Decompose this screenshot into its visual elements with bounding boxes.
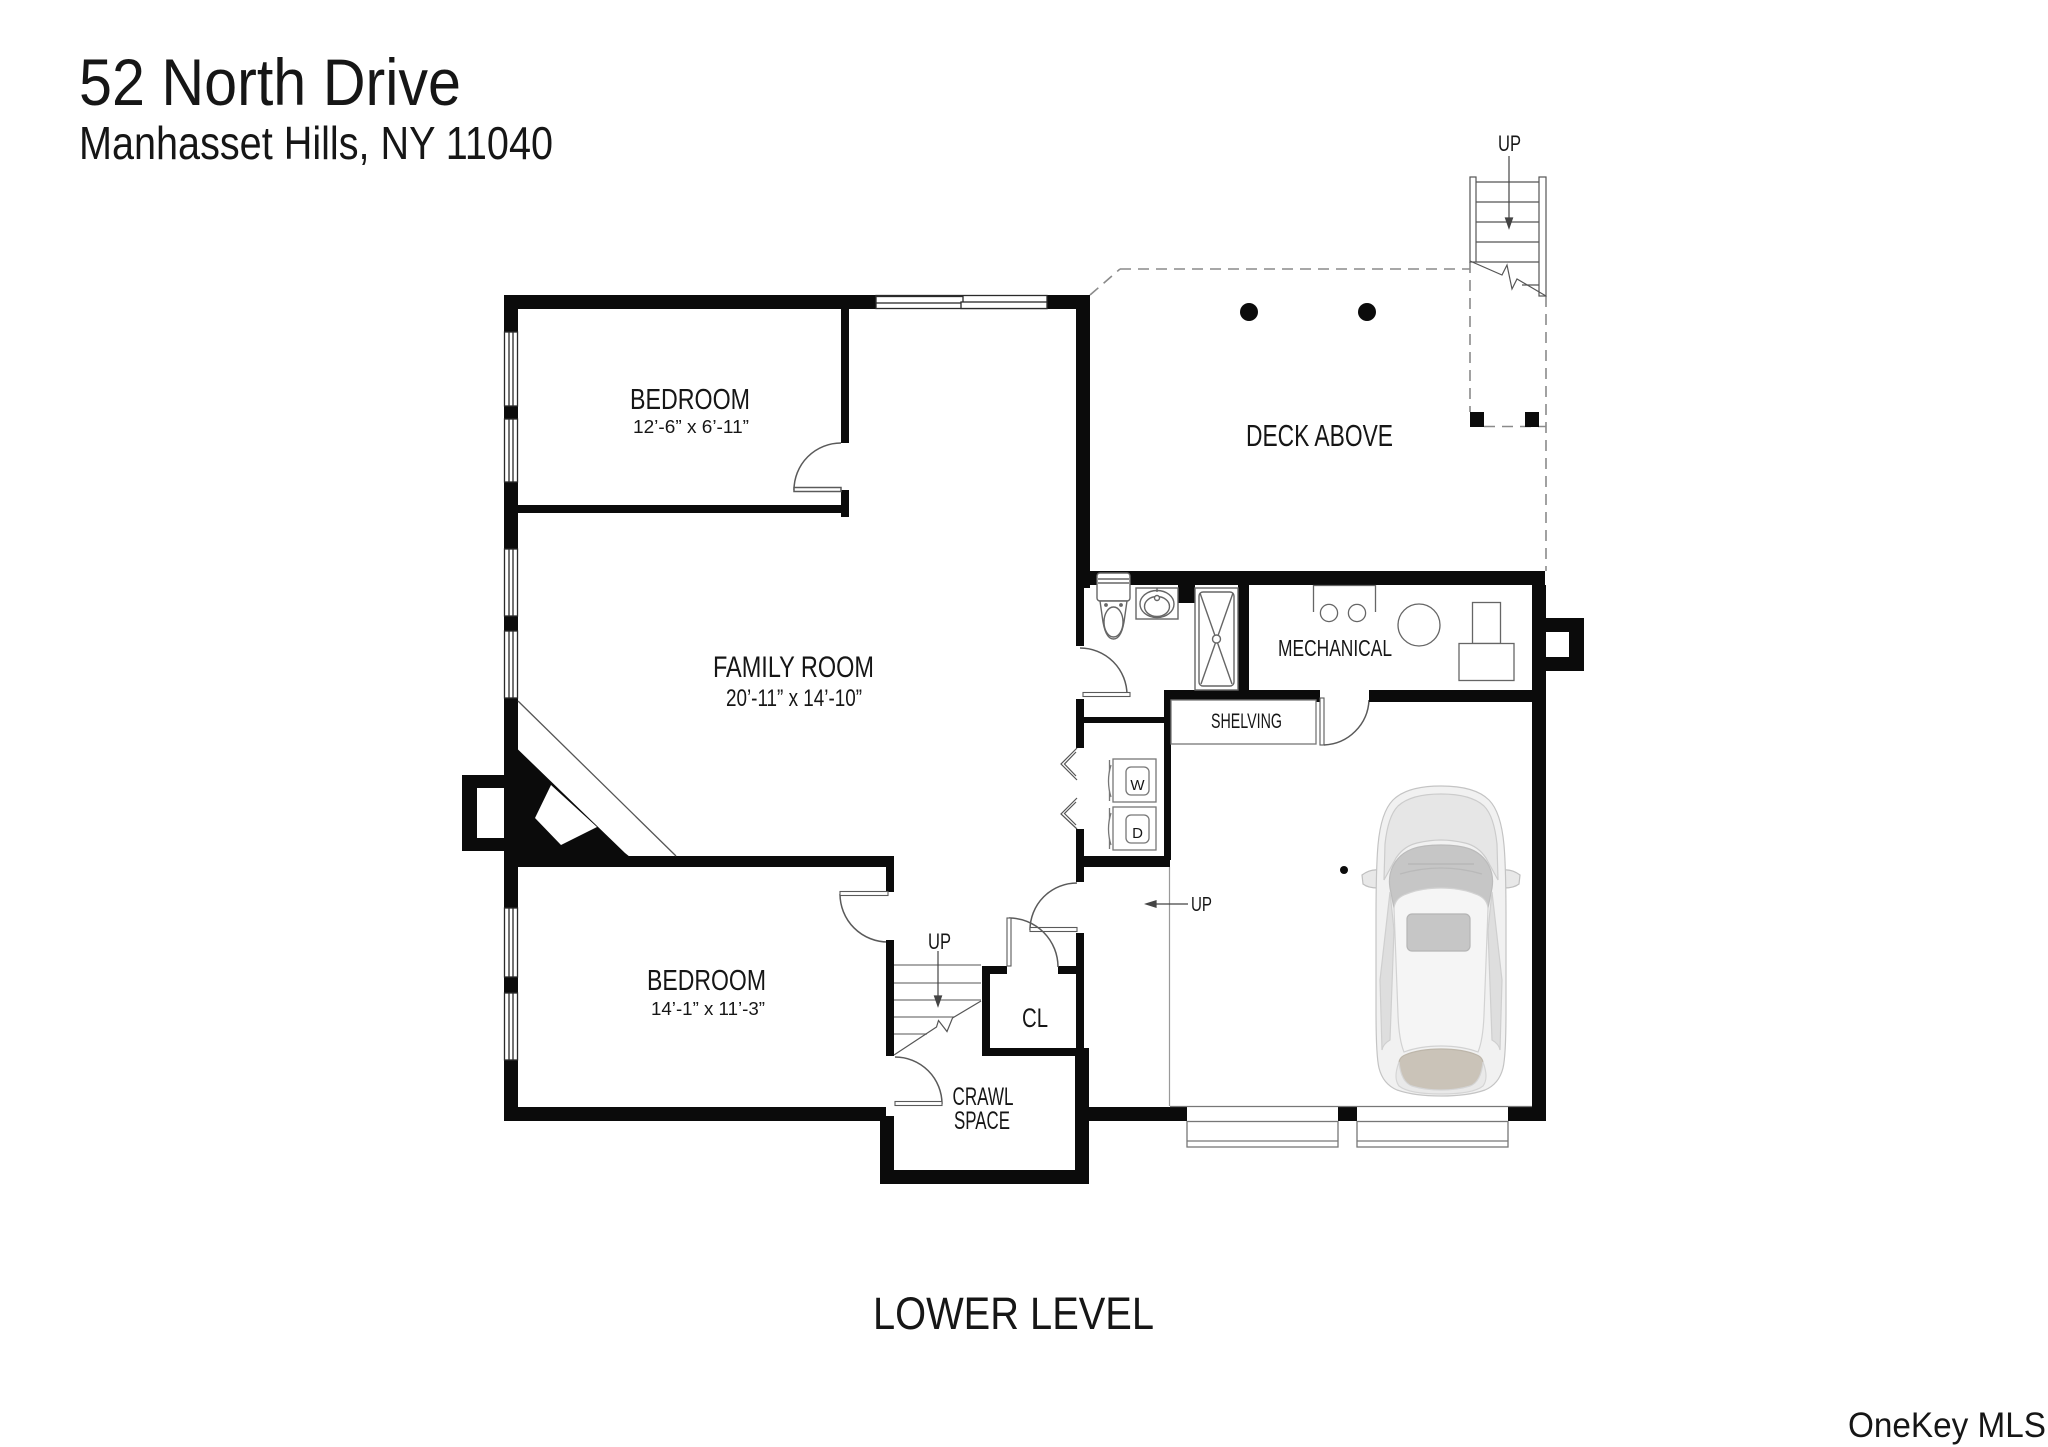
svg-text:LOWER LEVEL: LOWER LEVEL [873,1288,1154,1339]
svg-text:12’-6” x 6’-11”: 12’-6” x 6’-11” [633,416,749,437]
svg-text:SHELVING: SHELVING [1211,710,1282,733]
svg-text:FAMILY ROOM: FAMILY ROOM [713,651,874,684]
svg-text:W: W [1130,777,1145,794]
svg-text:DECK ABOVE: DECK ABOVE [1246,418,1393,453]
svg-text:SPACE: SPACE [954,1107,1010,1135]
svg-text:OneKey MLS: OneKey MLS [1848,1406,2046,1445]
svg-text:MECHANICAL: MECHANICAL [1278,635,1392,661]
svg-text:D: D [1132,825,1143,842]
svg-text:14’-1” x 11’-3”: 14’-1” x 11’-3” [651,998,765,1019]
svg-text:Manhasset Hills, NY 11040: Manhasset Hills, NY 11040 [79,117,553,169]
svg-text:UP: UP [928,929,951,954]
svg-text:UP: UP [1191,894,1212,916]
svg-text:CL: CL [1022,1003,1048,1033]
svg-text:BEDROOM: BEDROOM [630,384,750,416]
svg-text:52 North Drive: 52 North Drive [79,45,461,119]
svg-text:UP: UP [1498,131,1521,156]
svg-text:20’-11” x 14’-10”: 20’-11” x 14’-10” [726,685,862,712]
svg-text:BEDROOM: BEDROOM [647,965,766,997]
